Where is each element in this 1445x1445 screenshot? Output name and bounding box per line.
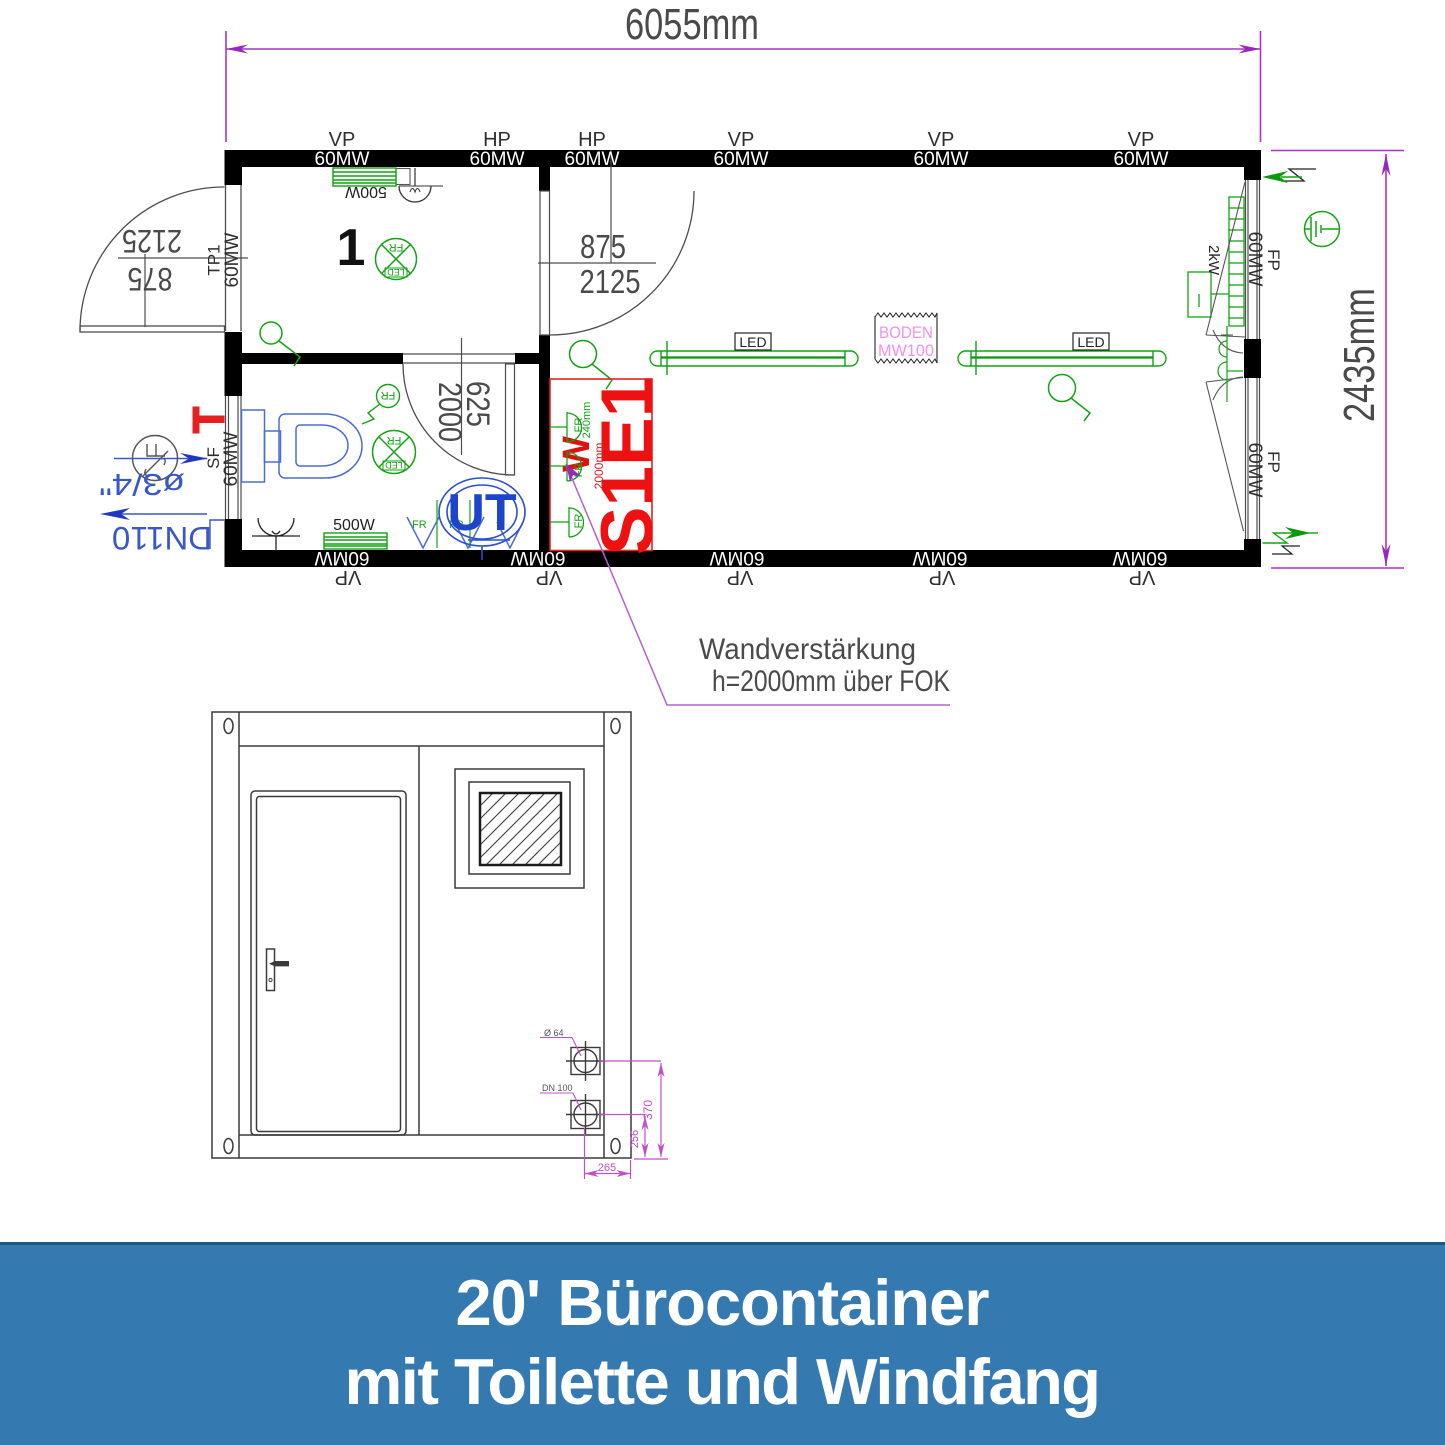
svg-text:60MW: 60MW bbox=[314, 547, 369, 568]
svg-text:Ø 64: Ø 64 bbox=[544, 1028, 564, 1038]
svg-text:LED: LED bbox=[739, 334, 766, 350]
svg-text:60MW: 60MW bbox=[221, 431, 242, 486]
svg-text:2000mm: 2000mm bbox=[592, 443, 606, 490]
svg-text:FP: FP bbox=[1264, 249, 1283, 271]
svg-text:60MW: 60MW bbox=[1112, 547, 1167, 568]
svg-text:Wandverstärkung: Wandverstärkung bbox=[699, 633, 916, 666]
svg-text:h=2000mm über FOK: h=2000mm über FOK bbox=[712, 665, 950, 698]
svg-text:2kW: 2kW bbox=[1205, 245, 1222, 276]
svg-text:mit Toilette und Windfang: mit Toilette und Windfang bbox=[344, 1345, 1099, 1418]
svg-text:265: 265 bbox=[598, 1162, 616, 1174]
svg-text:MW100: MW100 bbox=[878, 341, 934, 360]
svg-text:20' Bürocontainer: 20' Bürocontainer bbox=[455, 1266, 989, 1339]
svg-text:500W: 500W bbox=[333, 517, 376, 534]
svg-text:60MW: 60MW bbox=[565, 149, 620, 170]
svg-text:LED: LED bbox=[1077, 334, 1104, 350]
svg-text:VP: VP bbox=[536, 566, 563, 588]
svg-text:500W: 500W bbox=[344, 183, 387, 200]
svg-text:2435mm: 2435mm bbox=[1335, 288, 1384, 422]
svg-text:VP: VP bbox=[929, 566, 956, 588]
svg-text:6055mm: 6055mm bbox=[625, 0, 759, 49]
svg-text:60MW: 60MW bbox=[1244, 232, 1265, 287]
svg-text:VP: VP bbox=[728, 129, 755, 151]
svg-text:FR: FR bbox=[573, 514, 585, 529]
svg-text:1: 1 bbox=[337, 219, 366, 277]
svg-text:256: 256 bbox=[629, 1130, 641, 1148]
svg-text:BODEN: BODEN bbox=[879, 323, 933, 342]
svg-text:60MW: 60MW bbox=[470, 149, 525, 170]
svg-text:2000: 2000 bbox=[432, 382, 468, 442]
svg-text:875: 875 bbox=[128, 261, 173, 297]
svg-text:2125: 2125 bbox=[580, 263, 641, 300]
svg-text:60MW: 60MW bbox=[222, 232, 243, 287]
svg-text:370: 370 bbox=[641, 1100, 655, 1120]
svg-text:FP: FP bbox=[1264, 451, 1283, 473]
svg-text:FR: FR bbox=[387, 434, 402, 446]
svg-text:60MW: 60MW bbox=[914, 149, 969, 170]
svg-text:HP: HP bbox=[483, 129, 511, 151]
svg-text:VP: VP bbox=[727, 566, 754, 588]
svg-text:60MW: 60MW bbox=[912, 547, 967, 568]
svg-text:240mm: 240mm bbox=[581, 402, 593, 439]
svg-text:VP: VP bbox=[1128, 129, 1155, 151]
svg-text:UT: UT bbox=[447, 484, 517, 542]
svg-text:ø3/4": ø3/4" bbox=[99, 467, 185, 502]
svg-text:VP: VP bbox=[1129, 566, 1156, 588]
svg-text:875: 875 bbox=[580, 228, 626, 265]
svg-text:HP: HP bbox=[578, 129, 606, 151]
svg-text:VP: VP bbox=[329, 129, 356, 151]
svg-text:VP: VP bbox=[335, 566, 362, 588]
svg-text:LED: LED bbox=[387, 267, 405, 277]
svg-text:TP1: TP1 bbox=[205, 244, 224, 275]
svg-text:60MW: 60MW bbox=[709, 547, 764, 568]
svg-text:60MW: 60MW bbox=[1114, 149, 1169, 170]
svg-text:DN110: DN110 bbox=[112, 520, 212, 556]
svg-text:FR: FR bbox=[412, 519, 427, 531]
svg-text:DN 100: DN 100 bbox=[542, 1083, 573, 1093]
svg-text:VP: VP bbox=[928, 129, 955, 151]
svg-text:LED: LED bbox=[385, 460, 403, 470]
svg-text:FR: FR bbox=[389, 241, 404, 253]
svg-text:FR: FR bbox=[381, 389, 396, 401]
svg-text:60MW: 60MW bbox=[315, 149, 370, 170]
svg-text:60MW: 60MW bbox=[1244, 443, 1265, 498]
svg-text:2125: 2125 bbox=[122, 223, 182, 259]
svg-text:60MW: 60MW bbox=[714, 149, 769, 170]
